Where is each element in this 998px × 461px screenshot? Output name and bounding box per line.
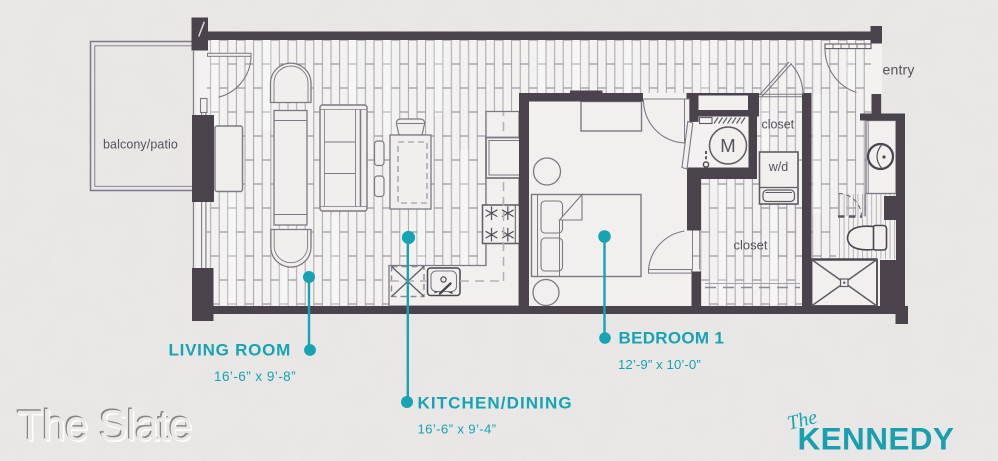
svg-text:closet: closet [762, 118, 795, 132]
svg-text:entry: entry [883, 62, 915, 78]
svg-text:KENNEDY: KENNEDY [798, 421, 955, 457]
svg-text:KITCHEN/DINING: KITCHEN/DINING [418, 394, 573, 413]
svg-text:16’-6” x 9’-4”: 16’-6” x 9’-4” [418, 422, 497, 437]
svg-text:The Slate: The Slate [17, 403, 192, 450]
svg-text:w/d: w/d [768, 160, 789, 174]
svg-text:M: M [720, 135, 735, 156]
svg-text:12’-9” x 10’-0”: 12’-9” x 10’-0” [618, 357, 701, 372]
svg-text:LIVING ROOM: LIVING ROOM [168, 341, 291, 360]
svg-text:BEDROOM 1: BEDROOM 1 [619, 329, 725, 348]
svg-text:16’-6” x 9’-8”: 16’-6” x 9’-8” [214, 369, 296, 384]
svg-text:closet: closet [734, 238, 768, 253]
svg-text:balcony/patio: balcony/patio [103, 138, 178, 152]
